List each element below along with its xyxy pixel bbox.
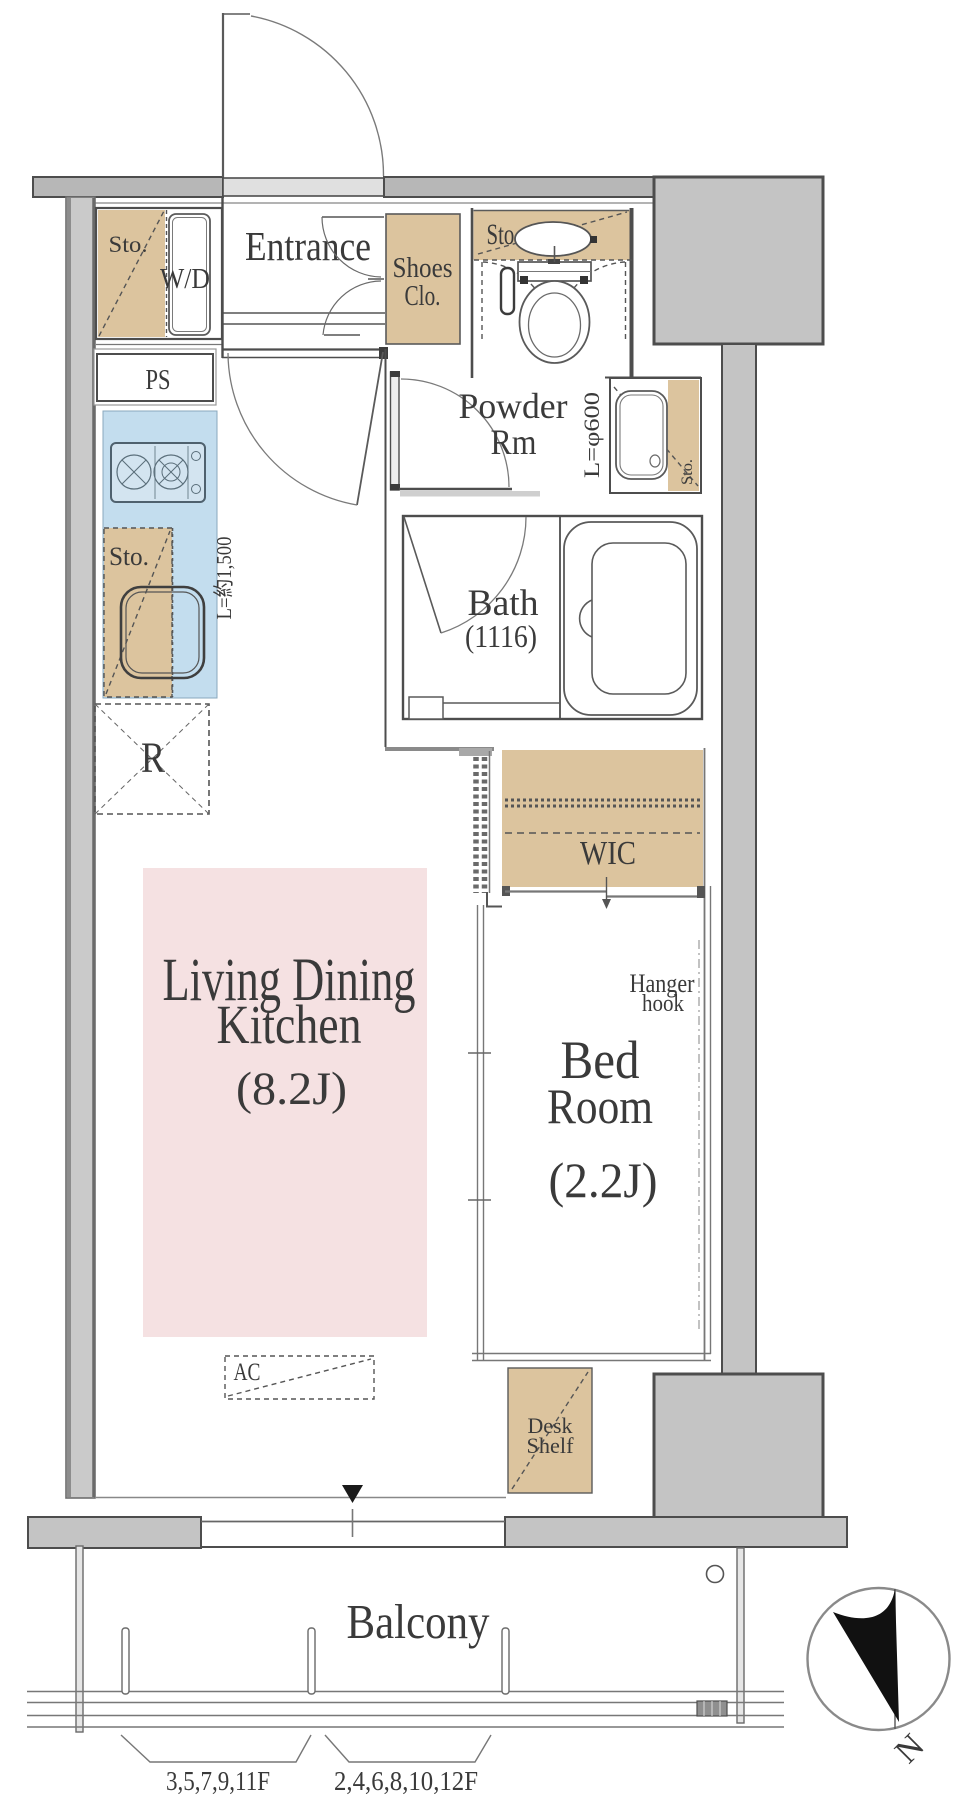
svg-text:Balcony: Balcony — [347, 1594, 490, 1649]
svg-text:Sto.: Sto. — [109, 232, 148, 257]
svg-text:2,4,6,8,10,12F: 2,4,6,8,10,12F — [334, 1766, 478, 1796]
svg-text:Sto.: Sto. — [487, 218, 520, 251]
svg-text:Shelf: Shelf — [527, 1433, 575, 1458]
svg-text:Room: Room — [547, 1078, 653, 1134]
svg-text:(8.2J): (8.2J) — [236, 1063, 347, 1115]
svg-text:Sto.: Sto. — [679, 459, 696, 485]
svg-text:Kitchen: Kitchen — [217, 994, 362, 1055]
svg-text:Sto.: Sto. — [109, 542, 149, 571]
svg-text:WIC: WIC — [580, 835, 636, 872]
svg-text:3,5,7,9,11F: 3,5,7,9,11F — [166, 1766, 270, 1796]
svg-text:L=φ600: L=φ600 — [579, 392, 604, 478]
svg-text:Powder: Powder — [459, 386, 568, 426]
svg-text:W/D: W/D — [160, 263, 210, 295]
svg-text:Rm: Rm — [491, 422, 537, 462]
svg-text:R: R — [141, 735, 165, 782]
svg-text:L=約1,500: L=約1,500 — [212, 537, 236, 620]
svg-text:Entrance: Entrance — [245, 223, 371, 269]
svg-text:Clo.: Clo. — [405, 280, 441, 312]
svg-text:(2.2J): (2.2J) — [549, 1152, 658, 1208]
svg-text:AC: AC — [234, 1359, 261, 1386]
svg-text:(1116): (1116) — [465, 618, 537, 654]
svg-text:PS: PS — [146, 365, 171, 396]
svg-text:hook: hook — [642, 991, 684, 1017]
